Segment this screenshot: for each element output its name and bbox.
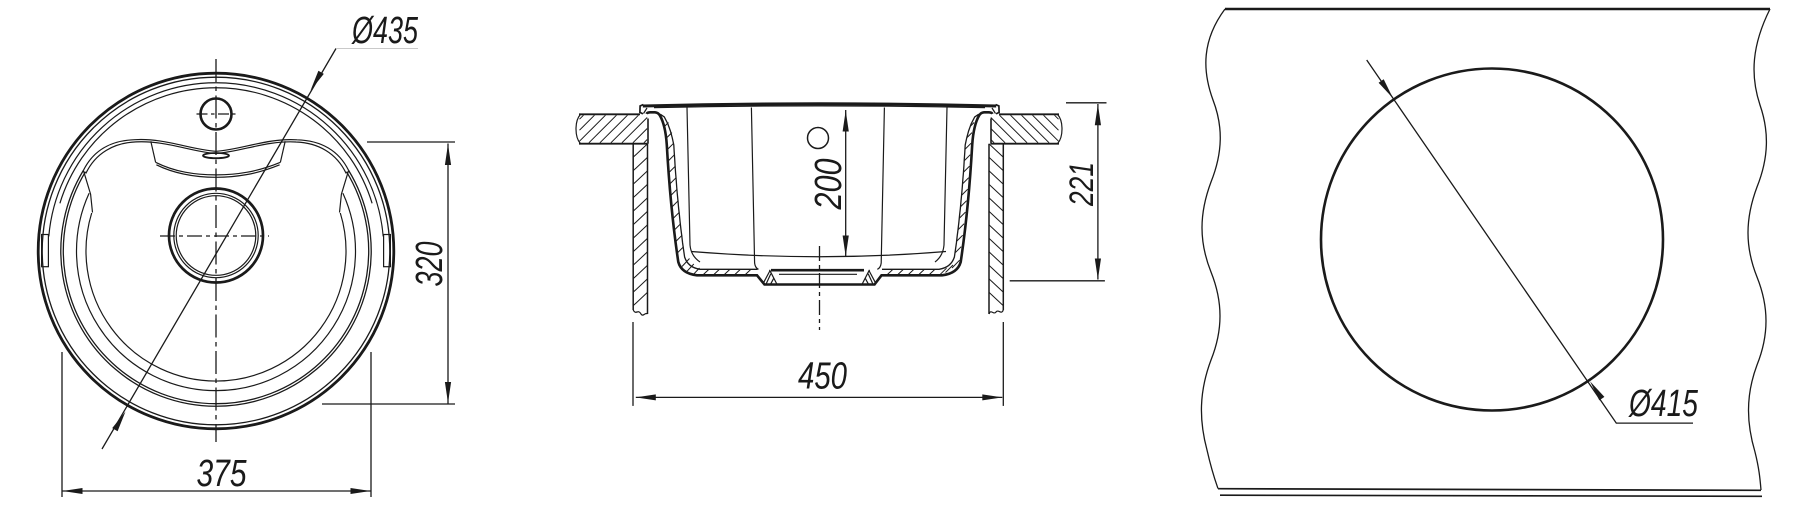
svg-text:Ø415: Ø415 xyxy=(1628,383,1699,425)
svg-text:221: 221 xyxy=(1063,162,1101,207)
svg-text:375: 375 xyxy=(197,453,248,495)
svg-text:320: 320 xyxy=(409,242,451,287)
svg-text:Ø435: Ø435 xyxy=(351,10,419,52)
svg-text:200: 200 xyxy=(808,159,850,211)
svg-text:450: 450 xyxy=(798,356,847,398)
